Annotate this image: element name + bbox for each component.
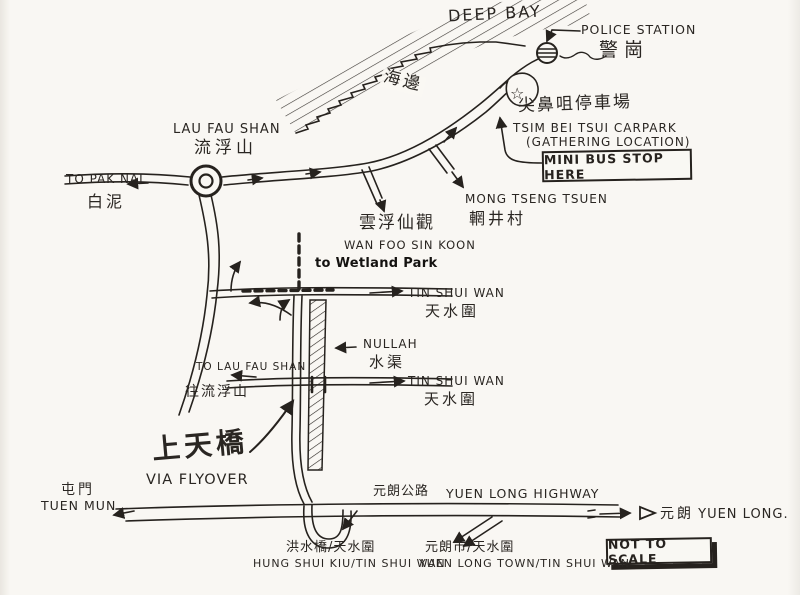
to-lau-fau-shan-label-zh: 往流浮山 (185, 384, 249, 400)
yuen-long-label-zh: 元朗 (660, 506, 694, 522)
yuen-long-label-en: YUEN LONG. (698, 507, 788, 522)
wan-foo-branch-road (362, 167, 384, 211)
lau-fau-shan-label-en: LAU FAU SHAN (173, 123, 281, 138)
carpark-label-en: TSIM BEI TSUI CARPARK (513, 122, 677, 136)
flyover-label-en: VIA FLYOVER (146, 472, 249, 489)
tin-shui-wai-2-label-en: TIN SHUI WAN (408, 375, 505, 389)
mini-bus-stop-box: MINI BUS STOP HERE (542, 149, 693, 183)
police-station-label-zh: 警崗 (599, 40, 649, 62)
pak-nai-label-en: TO PAK NAI (66, 173, 144, 187)
flyover-arrow (250, 401, 293, 452)
nullah-label-zh: 水渠 (369, 354, 405, 371)
hand-drawn-map: ☆ DEEP BAY POLICE STATION 警崗 海邊 尖鼻咀停車場 T… (0, 0, 800, 595)
police-station-label-en: POLICE STATION (581, 23, 696, 37)
police-station-icon (537, 30, 580, 63)
tuen-mun-label-zh: 屯門 (61, 482, 95, 498)
yuen-long-highway-road (114, 504, 655, 546)
yuen-long-label: 元朗 YUEN LONG. (660, 506, 789, 523)
carpark-gathering-note: (GATHERING LOCATION) (526, 136, 691, 150)
roundabout-icon (191, 166, 221, 196)
hung-shui-kiu-label-zh: 洪水橋/天水圍 (286, 541, 375, 556)
mong-tseng-branch-road (429, 145, 463, 187)
mong-tseng-tsuen-label-zh: 輞井村 (469, 210, 526, 228)
yuen-long-town-label-zh: 元朗市/天水圍 (425, 541, 514, 556)
hung-shui-kiu-label-en: HUNG SHUI KIU/TIN SHUI WAN (253, 558, 446, 571)
wan-foo-sin-koon-label-zh: 雲浮仙觀 (359, 214, 435, 234)
south-road (179, 195, 219, 415)
pak-nai-label-zh: 白泥 (87, 193, 125, 211)
nullah-label-en: NULLAH (363, 338, 418, 352)
tin-shui-wai-1-label-en: TIN SHUI WAN (408, 287, 505, 301)
lau-fau-shan-label-zh: 流浮山 (194, 139, 257, 159)
yuen-long-town-label-en: YUEN LONG TOWN/TIN SHUI WAN (419, 558, 630, 571)
tuen-mun-label-en: TUEN MUN (41, 499, 116, 513)
tin-shui-wai-2-label-zh: 天水圍 (424, 391, 478, 408)
tin-shui-wai-1-label-zh: 天水圍 (425, 303, 479, 320)
yuen-long-highway-label-zh: 元朗公路 (373, 485, 429, 500)
carpark-label-zh: 尖鼻咀停車場 (518, 93, 633, 117)
wetland-park-label: to Wetland Park (315, 257, 437, 272)
wan-foo-sin-koon-label-en: WAN FOO SIN KOON (344, 239, 476, 252)
to-lau-fau-shan-label-en: TO LAU FAU SHAN (196, 361, 306, 373)
mong-tseng-tsuen-label-en: MONG TSENG TSUEN (465, 193, 608, 207)
yuen-long-highway-label-en: YUEN LONG HIGHWAY (446, 487, 599, 501)
